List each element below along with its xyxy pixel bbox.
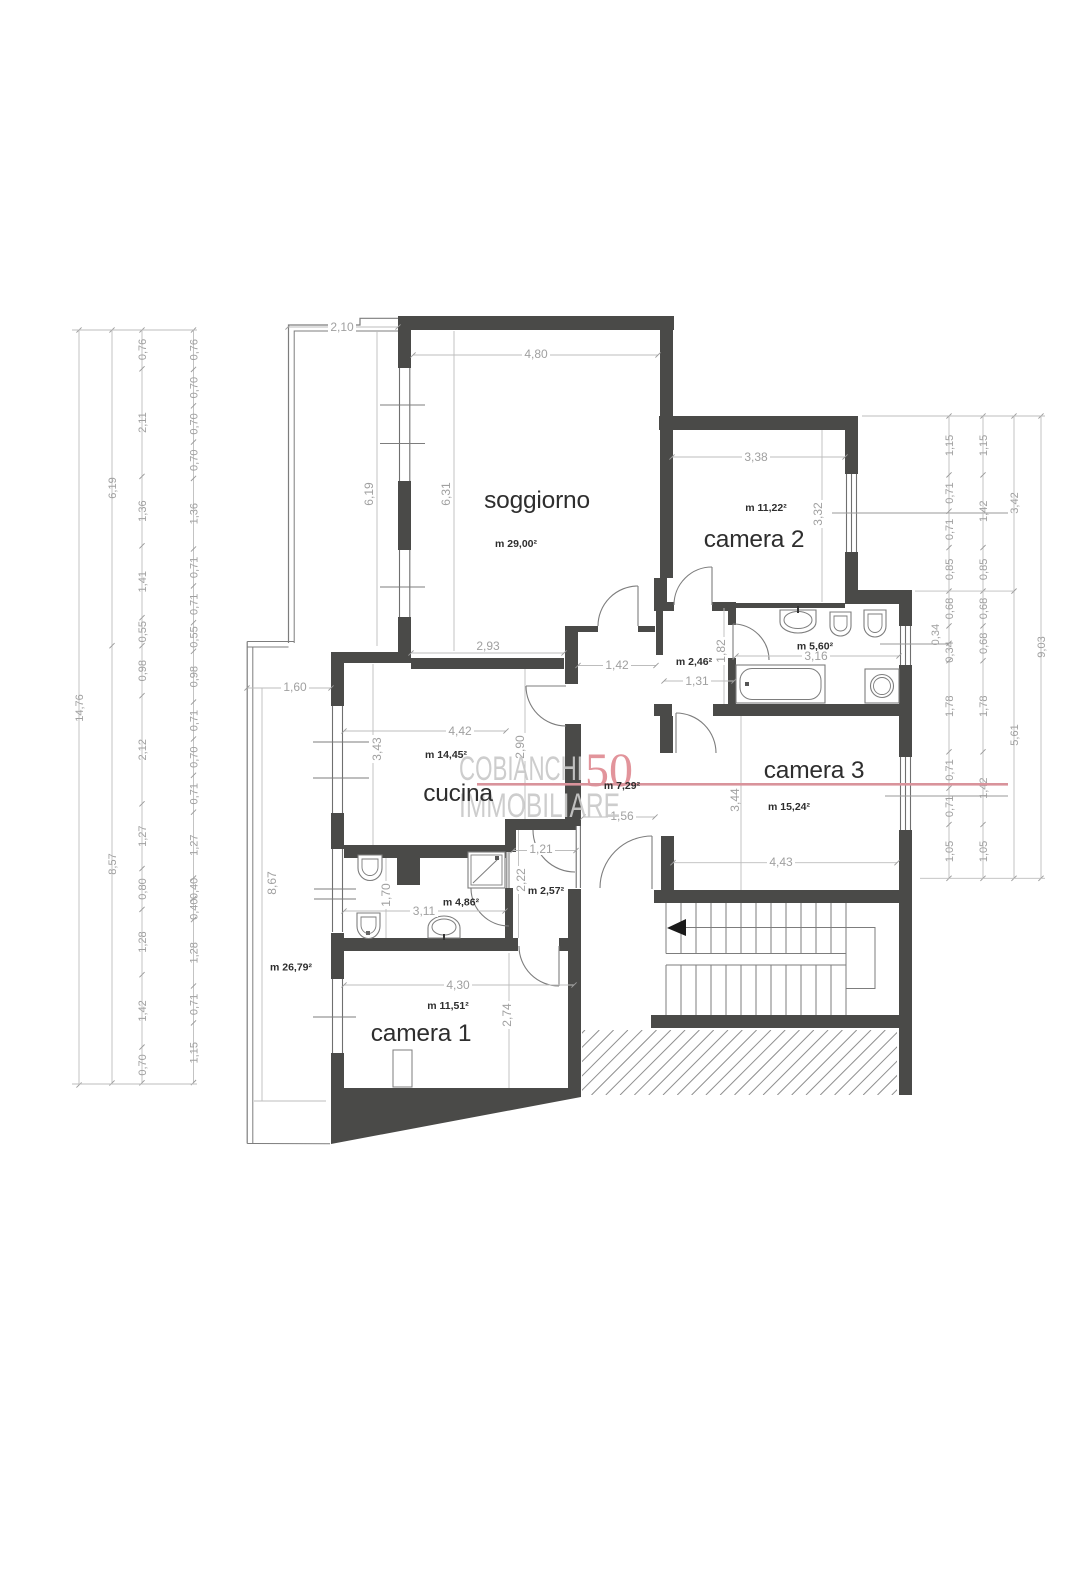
svg-text:0,70: 0,70 bbox=[189, 450, 201, 471]
svg-text:2,93: 2,93 bbox=[476, 639, 500, 653]
svg-text:9,03: 9,03 bbox=[1036, 636, 1048, 657]
svg-text:2,10: 2,10 bbox=[330, 320, 354, 334]
svg-text:0,85: 0,85 bbox=[978, 559, 990, 580]
svg-text:5,61: 5,61 bbox=[1009, 724, 1021, 745]
svg-text:4,42: 4,42 bbox=[448, 724, 472, 738]
svg-text:1,21: 1,21 bbox=[529, 842, 553, 856]
svg-text:1,05: 1,05 bbox=[978, 841, 990, 862]
svg-text:0,71: 0,71 bbox=[189, 557, 201, 578]
svg-text:0,76: 0,76 bbox=[137, 339, 149, 360]
svg-text:1,42: 1,42 bbox=[978, 501, 990, 522]
svg-text:1,15: 1,15 bbox=[978, 435, 990, 456]
svg-text:3,32: 3,32 bbox=[811, 502, 825, 526]
svg-text:0,80: 0,80 bbox=[137, 878, 149, 899]
svg-text:1,42: 1,42 bbox=[605, 658, 629, 672]
svg-text:1,41: 1,41 bbox=[137, 571, 149, 592]
svg-text:0,68: 0,68 bbox=[944, 598, 956, 619]
svg-text:1,05: 1,05 bbox=[944, 841, 956, 862]
svg-text:camera 1: camera 1 bbox=[371, 1020, 472, 1047]
svg-text:0,40: 0,40 bbox=[189, 878, 201, 899]
svg-text:m 2,57²: m 2,57² bbox=[528, 885, 565, 897]
svg-text:0,98: 0,98 bbox=[137, 660, 149, 681]
svg-text:m 14,45²: m 14,45² bbox=[425, 749, 468, 761]
svg-text:1,28: 1,28 bbox=[137, 931, 149, 952]
svg-text:1,36: 1,36 bbox=[137, 500, 149, 521]
svg-text:3,11: 3,11 bbox=[413, 904, 436, 918]
svg-text:m 26,79²: m 26,79² bbox=[270, 962, 313, 974]
svg-text:0,85: 0,85 bbox=[944, 559, 956, 580]
svg-text:3,44: 3,44 bbox=[728, 788, 742, 812]
svg-text:8,57: 8,57 bbox=[107, 853, 119, 874]
svg-text:m 15,24²: m 15,24² bbox=[768, 801, 811, 813]
svg-text:1,27: 1,27 bbox=[137, 825, 149, 846]
svg-text:m 11,22²: m 11,22² bbox=[745, 502, 787, 514]
svg-text:soggiorno: soggiorno bbox=[484, 487, 590, 514]
svg-text:0,70: 0,70 bbox=[189, 413, 201, 434]
svg-text:m 11,51²: m 11,51² bbox=[427, 1000, 469, 1012]
svg-text:0,98: 0,98 bbox=[189, 666, 201, 687]
svg-text:1,31: 1,31 bbox=[685, 674, 709, 688]
svg-text:1,42: 1,42 bbox=[978, 777, 990, 798]
svg-text:m 29,00²: m 29,00² bbox=[495, 538, 538, 550]
svg-text:0,71: 0,71 bbox=[944, 482, 956, 503]
svg-text:m 4,86²: m 4,86² bbox=[443, 897, 480, 909]
svg-text:2,74: 2,74 bbox=[500, 1003, 514, 1027]
svg-text:1,15: 1,15 bbox=[944, 435, 956, 456]
svg-text:1,70: 1,70 bbox=[379, 883, 393, 907]
svg-text:camera 2: camera 2 bbox=[704, 526, 805, 553]
svg-text:14,76: 14,76 bbox=[74, 694, 86, 722]
svg-text:m 2,46²: m 2,46² bbox=[676, 656, 713, 668]
svg-text:0,71: 0,71 bbox=[189, 994, 201, 1015]
svg-text:4,43: 4,43 bbox=[769, 855, 793, 869]
svg-text:0,71: 0,71 bbox=[189, 783, 201, 804]
svg-text:0,55: 0,55 bbox=[189, 626, 201, 647]
svg-text:2,11: 2,11 bbox=[137, 412, 149, 433]
svg-text:6,31: 6,31 bbox=[439, 482, 453, 506]
svg-text:0,34: 0,34 bbox=[944, 641, 956, 662]
svg-text:6,19: 6,19 bbox=[107, 477, 119, 498]
svg-text:1,28: 1,28 bbox=[189, 942, 201, 963]
svg-text:4,30: 4,30 bbox=[446, 978, 470, 992]
svg-text:0,70: 0,70 bbox=[189, 377, 201, 398]
svg-text:0,71: 0,71 bbox=[944, 519, 956, 540]
svg-text:1,15: 1,15 bbox=[189, 1042, 201, 1063]
svg-text:4,80: 4,80 bbox=[524, 347, 548, 361]
svg-text:1,27: 1,27 bbox=[189, 834, 201, 855]
svg-text:0,71: 0,71 bbox=[189, 710, 201, 731]
svg-text:2,22: 2,22 bbox=[514, 868, 528, 892]
svg-text:1,82: 1,82 bbox=[714, 639, 728, 663]
svg-text:m 7,29²: m 7,29² bbox=[604, 780, 641, 792]
svg-text:0,71: 0,71 bbox=[944, 759, 956, 780]
svg-text:camera 3: camera 3 bbox=[764, 757, 865, 784]
svg-text:cucina: cucina bbox=[423, 780, 493, 807]
svg-text:0,71: 0,71 bbox=[944, 796, 956, 817]
svg-text:0,76: 0,76 bbox=[189, 339, 201, 360]
svg-text:3,38: 3,38 bbox=[744, 450, 768, 464]
svg-text:0,55: 0,55 bbox=[137, 621, 149, 642]
svg-text:0,68: 0,68 bbox=[978, 633, 990, 654]
svg-text:0,70: 0,70 bbox=[137, 1054, 149, 1075]
svg-text:m 5,60²: m 5,60² bbox=[797, 641, 834, 653]
svg-text:0,40: 0,40 bbox=[189, 898, 201, 919]
svg-text:0,68: 0,68 bbox=[978, 598, 990, 619]
svg-text:3,42: 3,42 bbox=[1009, 492, 1021, 513]
svg-text:1,78: 1,78 bbox=[944, 696, 956, 717]
svg-text:0,71: 0,71 bbox=[189, 594, 201, 615]
svg-text:1,42: 1,42 bbox=[137, 1000, 149, 1021]
svg-text:2,12: 2,12 bbox=[137, 739, 149, 760]
svg-text:0,70: 0,70 bbox=[189, 746, 201, 767]
svg-text:3,43: 3,43 bbox=[370, 737, 384, 761]
svg-text:6,19: 6,19 bbox=[362, 482, 376, 506]
svg-text:1,60: 1,60 bbox=[283, 680, 307, 694]
svg-text:1,78: 1,78 bbox=[978, 696, 990, 717]
svg-text:8,67: 8,67 bbox=[265, 871, 279, 895]
svg-text:0,34: 0,34 bbox=[930, 624, 942, 645]
svg-text:1,36: 1,36 bbox=[189, 503, 201, 524]
